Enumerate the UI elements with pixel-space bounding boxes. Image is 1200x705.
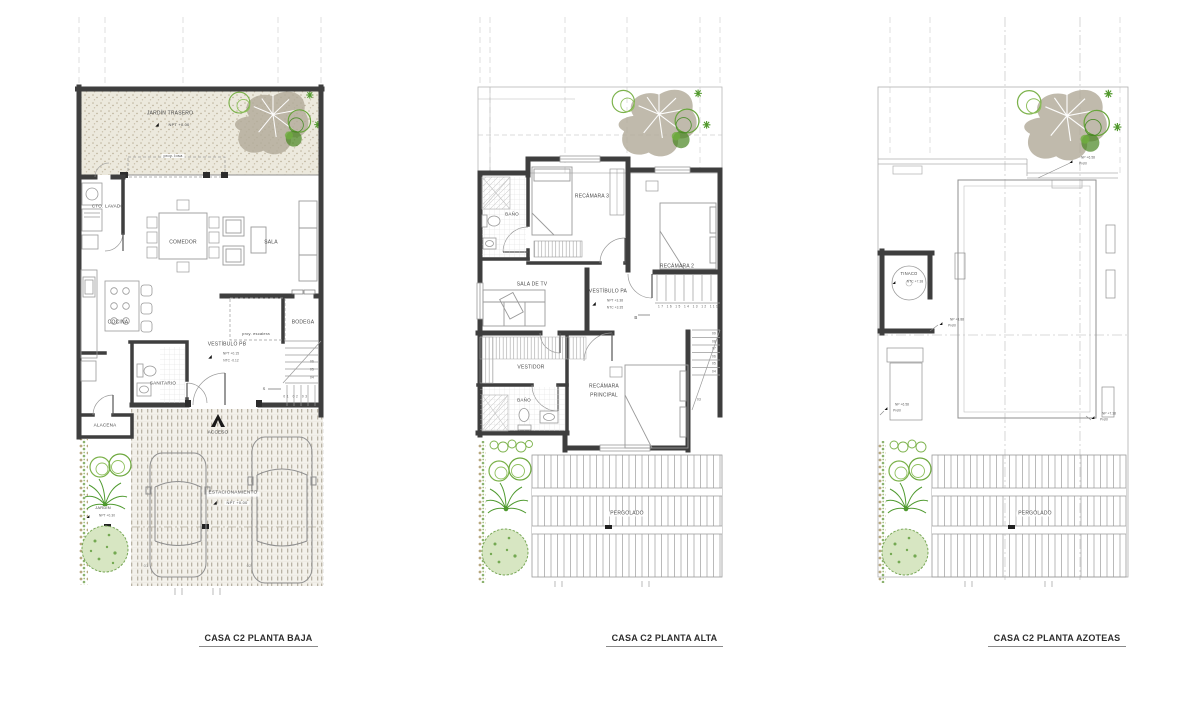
stair-lower — [692, 330, 720, 410]
tree-icon — [1018, 90, 1122, 161]
tinaco-enclosure — [880, 251, 932, 333]
title-planta-azoteas: CASA C2 PLANTA AZOTEAS — [972, 633, 1142, 647]
palm-plant — [486, 483, 528, 513]
drawing-planta-azoteas — [870, 15, 1135, 600]
title-planta-azoteas-text: CASA C2 PLANTA AZOTEAS — [988, 633, 1127, 647]
title-planta-alta: CASA C2 PLANTA ALTA — [592, 633, 737, 647]
stairs — [230, 298, 321, 406]
garden-strip — [79, 439, 131, 585]
recamara2-furniture — [646, 181, 716, 269]
drawing-planta-baja — [75, 15, 325, 600]
stair-upper — [638, 275, 720, 315]
bathroom-principal-fixtures — [480, 387, 565, 431]
sala-furniture — [223, 201, 317, 281]
garden-strip — [878, 440, 931, 583]
floor-plan-sheet: JARDÍN TRASERO ◢ NPT +0.00 proy. losa CT… — [0, 0, 1200, 705]
sala-tv-furniture — [483, 290, 545, 326]
pergola — [932, 455, 1126, 587]
plan-planta-azoteas: ◢ NP +6.58 Pretil TINACO ◢ NTC +7.38 ◢ N… — [870, 15, 1135, 600]
pergola — [532, 455, 722, 587]
drawing-planta-alta — [470, 15, 730, 600]
palm-plant — [85, 479, 127, 509]
recamara-principal-furniture — [610, 365, 688, 448]
recamara3-furniture — [532, 167, 624, 257]
bathroom-recamaras-fixtures — [482, 177, 526, 257]
cto-lavado-fixtures — [82, 183, 102, 249]
sanitario-fixtures — [137, 347, 185, 403]
dining-table — [147, 200, 219, 272]
palm-plant — [886, 483, 928, 513]
garden-strip — [478, 440, 533, 583]
plan-planta-baja: JARDÍN TRASERO ◢ NPT +0.00 proy. losa CT… — [75, 15, 325, 600]
title-planta-alta-text: CASA C2 PLANTA ALTA — [606, 633, 724, 647]
plan-planta-alta: BAÑO RECÁMARA 3 RECÁMARA 2 SALA DE TV VE… — [470, 15, 730, 600]
title-planta-baja: CASA C2 PLANTA BAJA — [186, 633, 331, 647]
vestidor-closets — [480, 337, 586, 383]
roof-panels — [887, 180, 1115, 420]
doors — [93, 163, 315, 415]
title-planta-baja-text: CASA C2 PLANTA BAJA — [199, 633, 319, 647]
